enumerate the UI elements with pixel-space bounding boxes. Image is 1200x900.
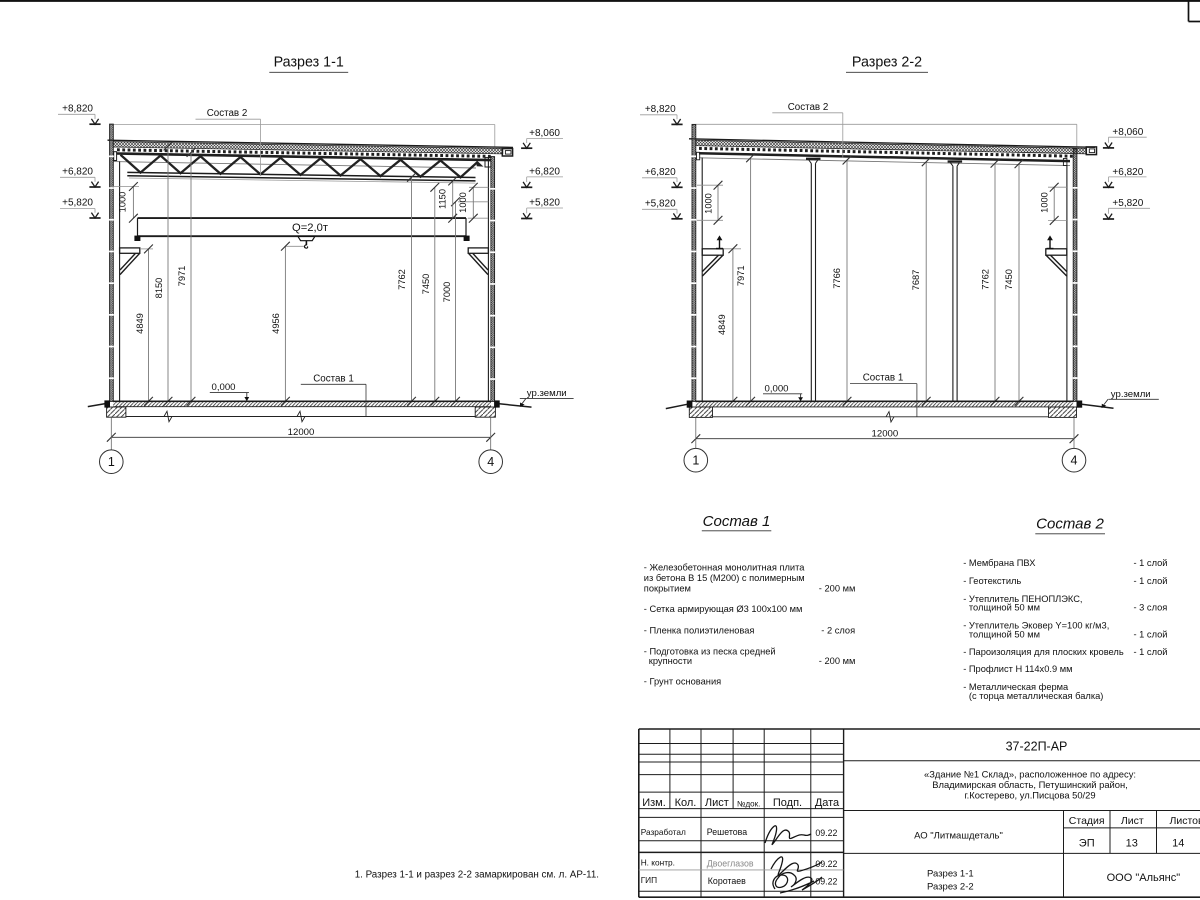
- svg-text:Дата: Дата: [815, 797, 840, 809]
- svg-text:Разрез 2-2: Разрез 2-2: [852, 55, 922, 71]
- svg-text:8150: 8150: [154, 278, 164, 299]
- svg-text:Лист: Лист: [705, 797, 729, 809]
- svg-text:г.Костерево, ул.Писцова 50/29: г.Костерево, ул.Писцова 50/29: [964, 790, 1095, 801]
- svg-text:- 1 слой: - 1 слой: [1134, 558, 1168, 568]
- svg-text:Стадия: Стадия: [1069, 815, 1105, 827]
- svg-text:4956: 4956: [271, 313, 281, 334]
- svg-text:Лист: Лист: [1121, 815, 1144, 827]
- svg-text:ур.земли: ур.земли: [527, 388, 567, 399]
- svg-text:Состав 1: Состав 1: [863, 373, 904, 384]
- svg-text:(с торца металлическая балка): (с торца металлическая балка): [969, 691, 1104, 701]
- svg-text:толщиной 50 мм: толщиной 50 мм: [969, 603, 1040, 613]
- svg-text:12000: 12000: [288, 427, 315, 438]
- svg-text:Состав 1: Состав 1: [703, 513, 771, 530]
- svg-text:Разрез 2-2: Разрез 2-2: [927, 882, 974, 893]
- svg-text:Состав 1: Состав 1: [313, 373, 354, 384]
- svg-text:1: 1: [692, 454, 699, 468]
- svg-text:7762: 7762: [981, 269, 991, 290]
- svg-text:Изм.: Изм.: [642, 797, 666, 809]
- svg-text:ЭП: ЭП: [1079, 838, 1095, 850]
- svg-text:- Пленка полиэтиленовая: - Пленка полиэтиленовая: [644, 625, 755, 635]
- svg-text:+5,820: +5,820: [529, 198, 560, 209]
- svg-text:7450: 7450: [1004, 269, 1014, 290]
- svg-text:- Железобетонная монолитная п: - Железобетонная монолитная плита: [644, 563, 805, 573]
- svg-text:+6,820: +6,820: [645, 167, 676, 178]
- svg-text:7450: 7450: [421, 274, 431, 295]
- svg-text:Листов: Листов: [1169, 815, 1200, 827]
- svg-text:09.22: 09.22: [815, 828, 837, 838]
- svg-text:- Грунт основания: - Грунт основания: [644, 677, 721, 687]
- svg-text:+5,820: +5,820: [62, 198, 93, 209]
- svg-text:+8,060: +8,060: [1112, 127, 1143, 138]
- svg-text:Н. контр.: Н. контр.: [641, 858, 675, 868]
- svg-text:- Геотекстиль: - Геотекстиль: [963, 576, 1021, 586]
- svg-text:4: 4: [487, 455, 494, 469]
- svg-text:+6,820: +6,820: [1112, 167, 1143, 178]
- svg-text:1: 1: [108, 455, 115, 469]
- svg-text:+6,820: +6,820: [62, 167, 93, 178]
- svg-text:1000: 1000: [703, 193, 713, 214]
- svg-text:12000: 12000: [872, 428, 899, 439]
- svg-text:№док.: №док.: [737, 800, 760, 809]
- svg-text:Разработал: Разработал: [641, 827, 686, 837]
- svg-text:ГИП: ГИП: [641, 875, 657, 885]
- svg-text:4: 4: [1071, 454, 1078, 468]
- svg-text:7762: 7762: [397, 269, 407, 290]
- svg-text:1000: 1000: [1040, 192, 1050, 213]
- svg-text:Двоеглазов: Двоеглазов: [707, 859, 754, 869]
- svg-text:- 1 слой: - 1 слой: [1134, 576, 1168, 586]
- svg-text:- 2 слоя: - 2 слоя: [821, 625, 855, 635]
- svg-text:Подп.: Подп.: [773, 797, 802, 809]
- svg-text:1150: 1150: [438, 189, 448, 209]
- svg-text:толщиной 50 мм: толщиной 50 мм: [969, 629, 1040, 639]
- svg-text:- Мембрана ПВХ: - Мембрана ПВХ: [963, 558, 1035, 568]
- svg-text:1000: 1000: [458, 192, 468, 213]
- svg-text:4849: 4849: [135, 313, 145, 334]
- svg-text:7687: 7687: [911, 270, 921, 291]
- svg-text:- Пароизоляция для плоских кро: - Пароизоляция для плоских кровель: [963, 647, 1124, 657]
- svg-text:1. Разрез 1-1 и разрез 2-2 зам: 1. Разрез 1-1 и разрез 2-2 замаркирован …: [355, 870, 599, 881]
- svg-text:7971: 7971: [177, 266, 187, 287]
- svg-text:0,000: 0,000: [765, 383, 789, 394]
- svg-text:7971: 7971: [736, 265, 746, 286]
- svg-text:Кол.: Кол.: [675, 797, 697, 809]
- svg-text:14: 14: [1172, 838, 1184, 850]
- svg-text:+5,820: +5,820: [1112, 198, 1143, 209]
- svg-text:- 200 мм: - 200 мм: [819, 583, 856, 593]
- svg-text:+6,820: +6,820: [529, 167, 560, 178]
- svg-text:1000: 1000: [118, 192, 128, 213]
- svg-text:Состав 2: Состав 2: [788, 102, 829, 113]
- svg-text:из бетона В 15 (М200) с полиме: из бетона В 15 (М200) с полимерным: [644, 573, 805, 583]
- svg-text:+8,060: +8,060: [529, 128, 560, 139]
- svg-text:крупности: крупности: [649, 656, 692, 666]
- svg-text:покрытием: покрытием: [644, 583, 691, 593]
- svg-text:- 3 слоя: - 3 слоя: [1134, 603, 1168, 613]
- svg-text:09.22: 09.22: [815, 876, 837, 886]
- svg-text:7766: 7766: [832, 268, 842, 289]
- svg-text:Разрез 1-1: Разрез 1-1: [274, 55, 344, 71]
- svg-text:Решетова: Решетова: [707, 827, 747, 837]
- svg-text:4849: 4849: [717, 314, 727, 335]
- svg-text:0,000: 0,000: [212, 382, 236, 393]
- svg-text:- 200 мм: - 200 мм: [819, 656, 856, 666]
- svg-text:Разрез 1-1: Разрез 1-1: [927, 869, 974, 880]
- svg-text:13: 13: [1126, 838, 1138, 850]
- svg-text:- 1 слой: - 1 слой: [1134, 629, 1168, 639]
- svg-text:ур.земли: ур.земли: [1111, 389, 1151, 400]
- svg-text:37-22П-АР: 37-22П-АР: [1006, 740, 1068, 754]
- svg-text:- 1 слой: - 1 слой: [1134, 647, 1168, 657]
- svg-text:7000: 7000: [442, 282, 452, 303]
- svg-text:«Здание №1 Склад», расположенн: «Здание №1 Склад», расположенное по адре…: [924, 769, 1136, 780]
- svg-text:Владимирская область, Петушинс: Владимирская область, Петушинский район,: [932, 779, 1128, 790]
- svg-text:Состав 2: Состав 2: [207, 108, 248, 119]
- svg-text:+8,820: +8,820: [62, 104, 93, 115]
- svg-text:ООО "Альянс": ООО "Альянс": [1107, 872, 1181, 884]
- svg-text:- Профлист Н 114х0.9 мм: - Профлист Н 114х0.9 мм: [963, 664, 1072, 674]
- svg-text:+5,820: +5,820: [645, 198, 676, 209]
- svg-text:АО "Литмашдеталь": АО "Литмашдеталь": [914, 831, 1003, 842]
- svg-text:+8,820: +8,820: [645, 104, 676, 115]
- svg-text:- Сетка армирующая Ø3 100х100: - Сетка армирующая Ø3 100х100 мм: [644, 604, 803, 614]
- svg-text:Коротаев: Коротаев: [708, 876, 746, 886]
- svg-text:Q=2,0т: Q=2,0т: [292, 222, 328, 234]
- svg-text:Состав 2: Состав 2: [1036, 516, 1104, 533]
